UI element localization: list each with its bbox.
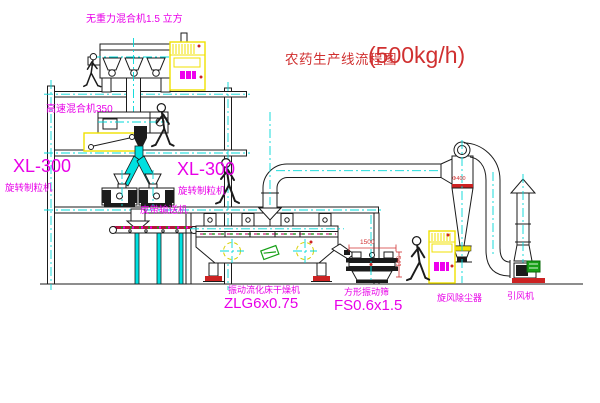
control-cabinet-top [170,42,205,90]
process-flow-diagram: 无重力混合机1.5 立方 高速混合机350 XL-300 旋转制粒机 XL-30… [0,0,600,403]
label-sieve-model: FS0.6x1.5 [334,298,402,313]
label-dryer-model: ZLG6x0.75 [224,296,298,311]
induced-draft-fan [512,261,545,283]
label-granulator-left-name: 旋转制粒机 [5,184,53,194]
support-post-left [186,213,191,284]
label-dryer-name: 振动流化床干燥机 [228,286,300,295]
label-granulator-left-model: XL-300 [13,157,71,175]
dim-cyclone: Φ400 [452,177,466,183]
label-sieve-name: 方形振动筛 [344,288,389,297]
worker-ground [407,237,429,280]
label-granulator-right-name: 旋转制粒机 [178,187,226,197]
fluid-bed-dryer [190,214,344,282]
dim-sieve-width: 1500 [360,240,374,247]
mixer-discharge-chute [134,126,147,138]
label-highspeed-mixer: 高速混合机350 [46,105,113,115]
label-granulator-right-model: XL-300 [177,160,235,178]
label-cyclone: 旋风除尘器 [437,294,482,303]
belt-conveyor [110,227,198,285]
diagram-title-capacity: (500kg/h) [368,44,465,67]
label-gravity-mixer: 无重力混合机1.5 立方 [86,15,183,25]
label-fan: 引风机 [507,292,534,301]
dim-sieve-height: 541 [394,256,401,267]
fan-duct-system [464,143,545,283]
label-belt-conveyor: 皮带输送机 [140,206,188,216]
vibrating-sieve [332,215,402,283]
control-cabinet-bottom [429,231,455,283]
